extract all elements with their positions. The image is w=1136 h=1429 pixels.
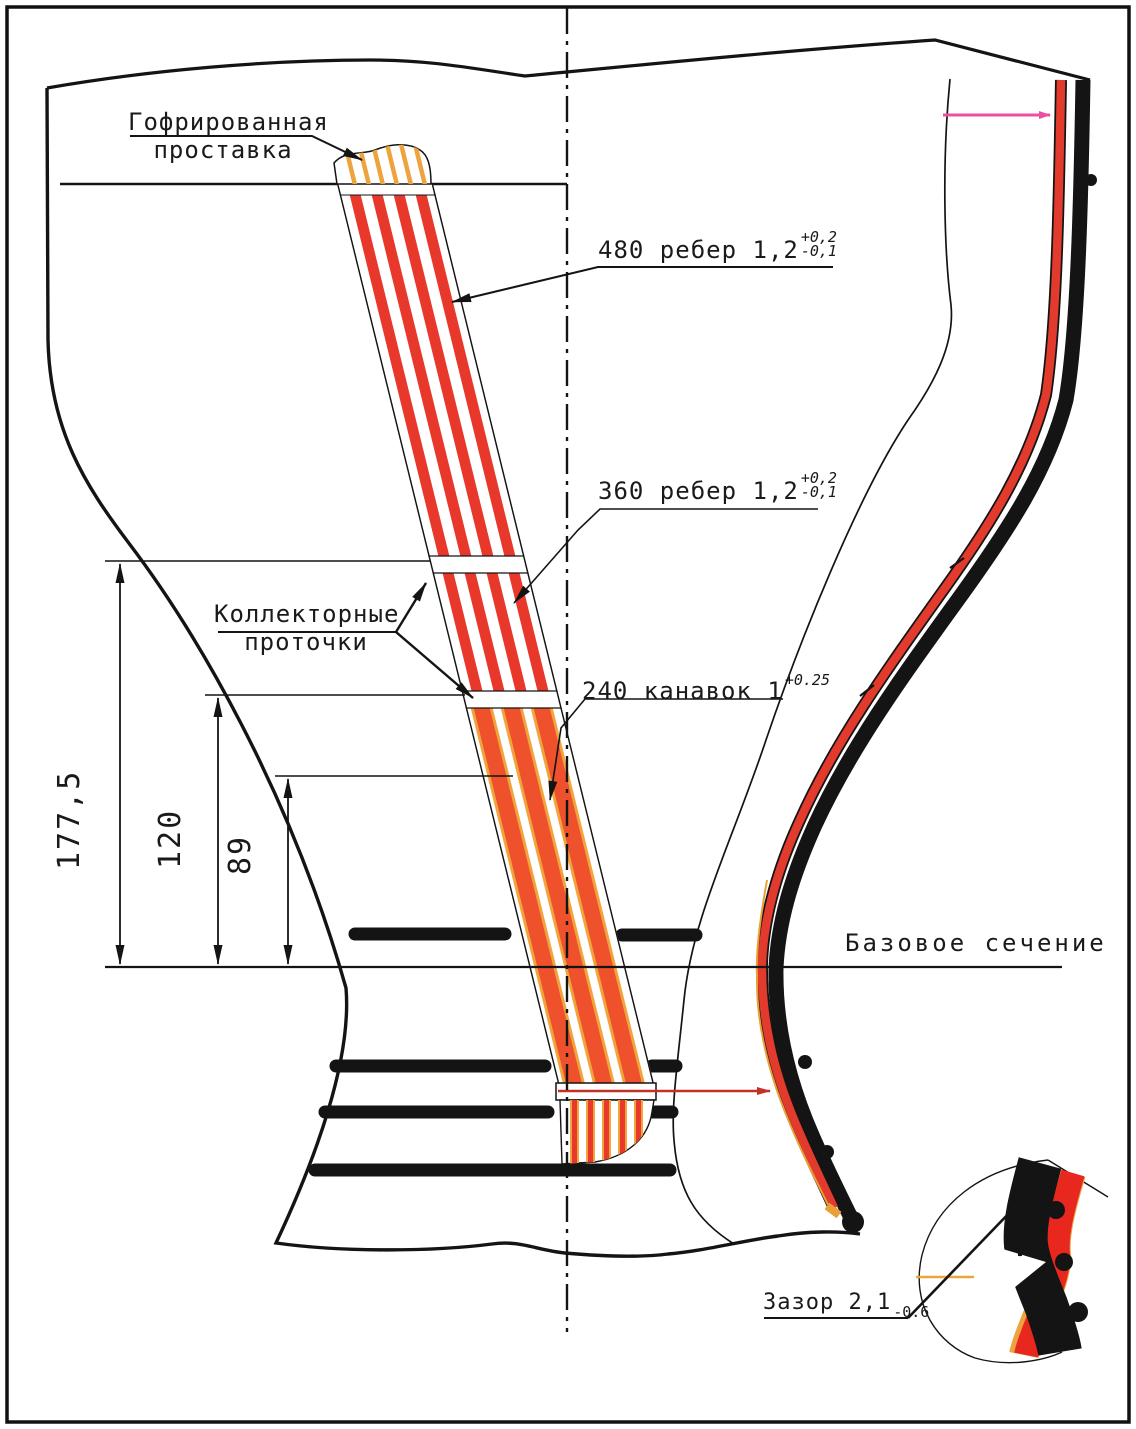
- dimension-120: 120: [156, 809, 186, 869]
- gap-detail-view: [764, 1160, 1108, 1363]
- label-corrugated-spacer-line2: проставка: [128, 136, 318, 164]
- wall-bump: [1085, 174, 1097, 186]
- label-corrugated-spacer-line1: Гофрированная: [128, 108, 318, 136]
- grooves-240-stripe-cores: [474, 708, 642, 1083]
- label-collector-line2: проточки: [214, 628, 398, 656]
- label-360-ribs-text: 360 ребер 1,2: [598, 477, 799, 505]
- label-base-section: Базовое сечение: [845, 929, 1107, 957]
- dimension-89: 89: [226, 835, 256, 875]
- engineering-drawing-page: Гофрированная проставка 480 ребер 1,2+0,…: [0, 0, 1136, 1429]
- leader-240-grooves: [550, 699, 783, 800]
- corrugated-spacer-cap: [334, 144, 431, 185]
- label-480-tol-minus: -0,1: [801, 244, 837, 258]
- detail-bump: [1047, 1201, 1065, 1219]
- detail-bump: [1068, 1302, 1088, 1322]
- red-band-orange-tip: [827, 1206, 839, 1215]
- label-360-tol-minus: -0,1: [801, 485, 837, 499]
- label-240-grooves-text: 240 канавок 1: [582, 677, 783, 705]
- collar-assembly: [556, 1083, 770, 1166]
- leader-480-ribs: [452, 267, 833, 302]
- label-corrugated-spacer: Гофрированная проставка: [128, 108, 318, 164]
- label-collector-line1: Коллекторные: [214, 600, 398, 628]
- label-gap-text: Зазор 2,1: [763, 1290, 891, 1315]
- label-480-ribs-text: 480 ребер 1,2: [598, 236, 799, 264]
- wall-bump: [820, 1145, 834, 1159]
- label-240-grooves: 240 канавок 1+0.25: [582, 666, 830, 705]
- dimension-177-5: 177,5: [55, 770, 85, 870]
- label-360-ribs: 360 ребер 1,2+0,2-0,1: [598, 477, 837, 505]
- detail-bump: [1055, 1253, 1073, 1271]
- label-480-ribs: 480 ребер 1,2+0,2-0,1: [598, 236, 837, 264]
- label-collector-grooves: Коллекторные проточки: [214, 600, 398, 656]
- leader-collector-upper: [396, 583, 426, 632]
- label-240-tol: +0.25: [785, 671, 830, 689]
- wall-bump: [798, 1055, 812, 1069]
- label-gap-tol: -0.6: [893, 1303, 929, 1321]
- body-top-edge: [47, 40, 1090, 88]
- label-gap: Зазор 2,1-0.6: [763, 1289, 929, 1326]
- leader-360-ribs: [514, 509, 818, 603]
- technical-drawing: [0, 0, 1136, 1429]
- wall-end-blob: [842, 1211, 864, 1233]
